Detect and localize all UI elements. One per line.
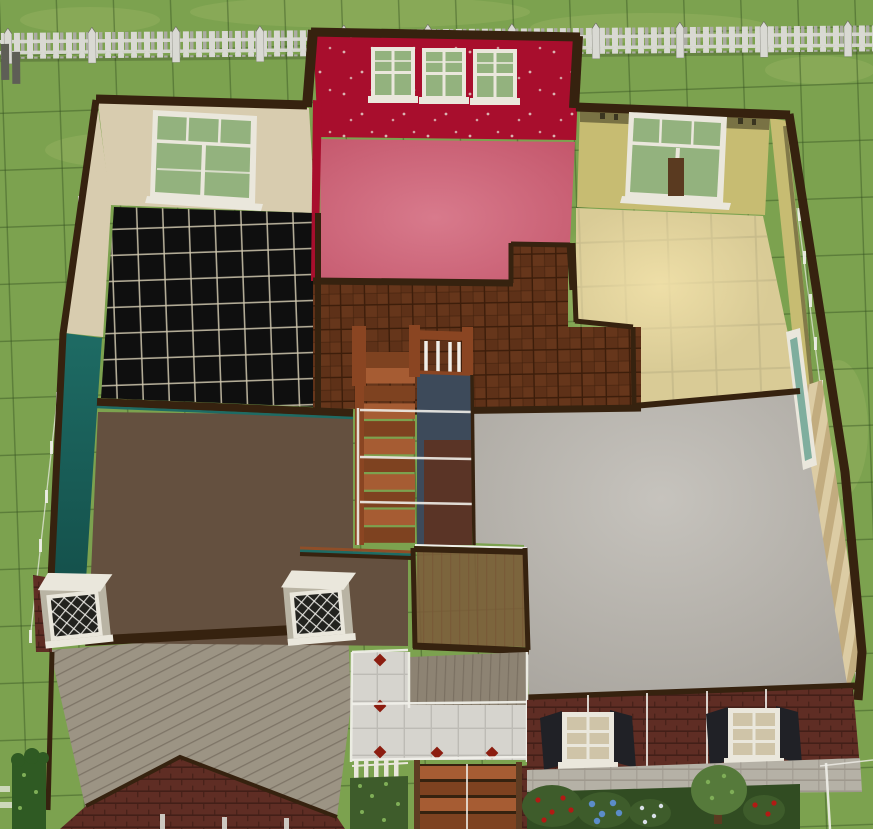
leaf-highlight: [360, 810, 364, 814]
window-mullion: [692, 121, 693, 147]
porch-post: [222, 817, 227, 829]
leaf-highlight: [396, 802, 400, 806]
fence-corner-post: [12, 52, 20, 84]
step-rail-right: [516, 762, 522, 829]
rose-bloom: [541, 817, 546, 822]
rose-bush-2[interactable]: [743, 795, 785, 825]
hedge-highlight: [22, 773, 26, 777]
rose-bloom: [568, 807, 573, 812]
window-center-mullion: [202, 145, 204, 200]
window-mullion: [219, 119, 220, 145]
hydrangea-bloom: [594, 818, 600, 824]
window-topleft-room[interactable]: [145, 110, 263, 211]
rose-bloom: [771, 800, 776, 805]
trim-crimson-right: [574, 36, 578, 108]
stair-tread[interactable]: [362, 439, 415, 455]
landing-top-trim: [414, 549, 527, 552]
window-box-1[interactable]: [36, 566, 119, 649]
stair-tread[interactable]: [362, 386, 415, 402]
porch-post: [160, 814, 165, 829]
newel-right-1[interactable]: [409, 325, 420, 377]
leaf-highlight: [358, 784, 362, 788]
shuttered-window-1[interactable]: [540, 710, 636, 770]
stair-tread[interactable]: [362, 510, 415, 525]
hydrangea-bloom: [589, 801, 595, 807]
leaf-highlight: [382, 818, 386, 822]
newel-right-2[interactable]: [462, 327, 473, 375]
rose-bloom: [535, 797, 540, 802]
leaf-highlight: [730, 790, 734, 794]
trim-yellow-step-v: [633, 327, 634, 406]
newel-left[interactable]: [352, 326, 366, 386]
shuttered-window-2[interactable]: [706, 706, 802, 766]
lower-wall-bit: [0, 786, 10, 792]
rose-bloom: [560, 795, 565, 800]
hydrangea-bloom: [616, 810, 622, 816]
trim-yellow-floor-left: [573, 243, 576, 322]
border-animal-mark: [752, 119, 756, 125]
mini-deck-lines: [410, 652, 527, 708]
hedge-body[interactable]: [12, 756, 46, 829]
stairwell-lower-floor: [424, 440, 472, 545]
leaf-highlight: [706, 780, 710, 784]
hedge-tuft: [37, 752, 49, 764]
landing-left-trim: [413, 548, 415, 648]
trim-crimson-top: [311, 32, 580, 37]
hedge[interactable]: [11, 748, 49, 829]
hydrangea-bush[interactable]: [577, 792, 631, 828]
leaf-highlight: [710, 796, 714, 800]
white-bloom: [652, 814, 656, 818]
window-box-2[interactable]: [280, 565, 362, 646]
trim-pink-notch-h: [511, 244, 570, 245]
rose-bush-1[interactable]: [522, 785, 582, 827]
border-animal-mark: [738, 118, 743, 124]
leaf-highlight: [370, 794, 374, 798]
gray-carpet-floor[interactable]: [473, 391, 849, 699]
figure-behind-window: [668, 158, 684, 196]
border-animal-mark: [600, 113, 605, 119]
trim-pink-bottom: [313, 281, 513, 283]
blossom-bush[interactable]: [629, 799, 671, 827]
trim-crimson-left: [307, 30, 313, 107]
stair-tread[interactable]: [362, 368, 415, 384]
house-overhead-scene: [0, 0, 873, 829]
tree-foliage[interactable]: [691, 765, 747, 815]
stair-top-landing[interactable]: [362, 352, 415, 368]
rose-bloom: [549, 809, 554, 814]
exterior-steps[interactable]: [414, 760, 522, 829]
rose-bloom: [765, 811, 770, 816]
black-tile-floor[interactable]: [101, 207, 318, 407]
landing-bottom-trim: [413, 646, 529, 651]
rail-right-bottom: [413, 372, 470, 374]
stair-treads[interactable]: [362, 352, 415, 543]
leaf-highlight: [722, 774, 726, 778]
stair-tread[interactable]: [362, 527, 415, 543]
hydrangea-bloom: [599, 811, 605, 817]
trim-topleft-top: [96, 99, 307, 105]
step-rail-left: [414, 760, 420, 829]
hedge-highlight: [18, 806, 22, 810]
leaf-highlight: [384, 782, 388, 786]
crimson-window-3[interactable]: [470, 49, 520, 105]
stair-tread[interactable]: [362, 474, 415, 490]
window-yellow-room[interactable]: [620, 112, 731, 210]
white-bloom: [659, 804, 663, 808]
crimson-window-1[interactable]: [368, 47, 418, 103]
picket: [364, 760, 369, 780]
landing-right-trim: [525, 548, 528, 650]
windows-crimson-room[interactable]: [368, 47, 520, 105]
fence-corner-post: [1, 44, 9, 80]
hydrangea-bloom: [610, 800, 616, 806]
window-mullion: [187, 117, 188, 143]
picket: [354, 760, 359, 780]
lower-wall-bit: [0, 802, 12, 808]
white-bloom: [640, 806, 644, 810]
game-viewport: [0, 0, 873, 829]
stair-landing[interactable]: [413, 545, 529, 651]
hedge-highlight: [34, 790, 38, 794]
patio-grout-bottom: [408, 705, 527, 760]
crimson-window-2[interactable]: [419, 48, 469, 104]
picket: [374, 760, 379, 780]
stair-tread[interactable]: [362, 421, 415, 437]
rose-bloom: [752, 802, 757, 807]
landing-planks[interactable]: [415, 548, 527, 647]
hedge-tuft: [11, 753, 25, 767]
porch-mini-deck[interactable]: [410, 652, 527, 708]
window-mullion: [660, 119, 661, 145]
border-animal-mark: [614, 114, 618, 120]
porch-post: [284, 818, 289, 829]
white-bloom: [643, 820, 647, 824]
stair-tread[interactable]: [362, 492, 415, 508]
